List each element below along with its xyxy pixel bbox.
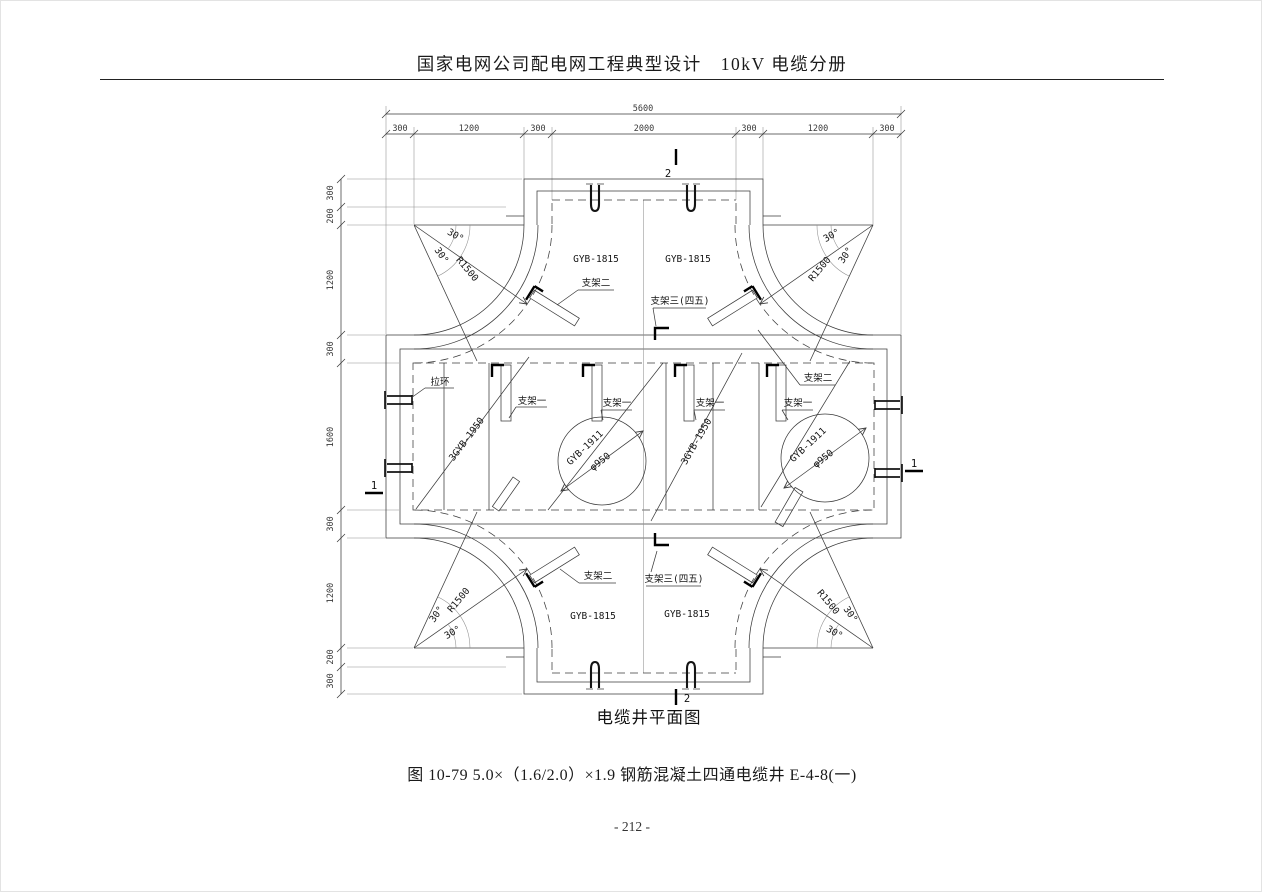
bracket1-label-3: 支架一 — [696, 397, 725, 409]
dim-left-segment-8: 200 — [326, 649, 336, 664]
dim-top-segment-7: 300 — [879, 124, 894, 134]
cover-group-label-left: 3GYB-1950 — [447, 415, 487, 463]
bracket2-label-right: 支架二 — [804, 372, 833, 384]
angle-label-br-2: 30° — [824, 624, 844, 642]
dim-top-segment-1: 300 — [392, 124, 407, 134]
dim-left-segment-1: 300 — [326, 185, 336, 200]
angle-label-tr-2: 30° — [822, 227, 842, 245]
dim-top-segment-2: 1200 — [459, 124, 479, 134]
bracket1-label-1: 支架一 — [518, 395, 547, 407]
manhole-dia-label-right: φ950 — [811, 447, 836, 470]
document-page: 国家电网公司配电网工程典型设计 10kV 电缆分册 — [0, 0, 1262, 892]
page-number: - 212 - — [1, 819, 1262, 835]
angle-label-bl-1: 30° — [428, 604, 447, 624]
section-1-label-left: 1 — [371, 480, 377, 492]
radius-label-tl: R1500 — [454, 255, 481, 284]
angle-label-br-1: 30° — [841, 604, 860, 624]
dim-overall-width: 5600 — [633, 104, 653, 114]
section-2-label-top: 2 — [665, 168, 671, 180]
radius-label-br: R1500 — [815, 588, 842, 617]
bracket-slots — [492, 365, 803, 527]
cable-well-plan-drawing: 5600 300 1200 300 2000 300 1200 300 300 … — [1, 1, 1262, 892]
wing-bottom-right — [706, 510, 873, 648]
dim-left-segment-9: 300 — [326, 673, 336, 688]
drawing-caption: 电缆井平面图 — [597, 708, 702, 727]
cover-side-label-tr: GYB-1815 — [665, 254, 711, 265]
dim-top-segment-6: 1200 — [808, 124, 828, 134]
section-1-label-right: 1 — [911, 458, 917, 470]
radius-label-tr: R1500 — [807, 255, 834, 284]
bracket3-label-bottom: 支架三(四五) — [645, 573, 704, 585]
cover-side-label-tl: GYB-1815 — [573, 254, 619, 265]
radius-label-bl: R1500 — [446, 586, 473, 615]
wing-bottom-left — [414, 510, 581, 648]
dim-top-segment-3: 300 — [530, 124, 545, 134]
cover-side-label-bl: GYB-1815 — [570, 611, 616, 622]
bracket1-label-4: 支架一 — [784, 397, 813, 409]
bracket2-label-top: 支架二 — [582, 277, 611, 289]
figure-caption: 图 10-79 5.0×（1.6/2.0）×1.9 钢筋混凝土四通电缆井 E-4… — [1, 761, 1262, 785]
cover-side-label-br: GYB-1815 — [664, 609, 710, 620]
dim-top-segment-4: 2000 — [634, 124, 654, 134]
cover-group-label-right: 3GYB-1950 — [679, 416, 714, 466]
dim-left-segment-7: 1200 — [326, 583, 336, 603]
left-dimension-chain: 300 200 1200 300 1600 300 1200 200 300 — [326, 175, 522, 698]
bracket2-label-bottom: 支架二 — [584, 570, 613, 582]
wing-top-right — [706, 225, 873, 363]
cover-plate-diagonals — [416, 353, 850, 521]
bracket1-label-2: 支架一 — [603, 397, 632, 409]
bracket3-label-top: 支架三(四五) — [651, 295, 710, 307]
angle-label-bl-2: 30° — [443, 624, 463, 642]
dim-left-segment-5: 1600 — [326, 427, 336, 447]
angle-label-tl-2: 30° — [445, 227, 465, 245]
dim-left-segment-6: 300 — [326, 516, 336, 531]
pull-ring-label: 拉环 — [430, 376, 449, 388]
dim-left-segment-4: 300 — [326, 341, 336, 356]
dim-left-segment-2: 200 — [326, 208, 336, 223]
section-2-label-bottom: 2 — [684, 693, 690, 705]
dim-left-segment-3: 1200 — [326, 270, 336, 290]
dim-top-segment-5: 300 — [741, 124, 756, 134]
